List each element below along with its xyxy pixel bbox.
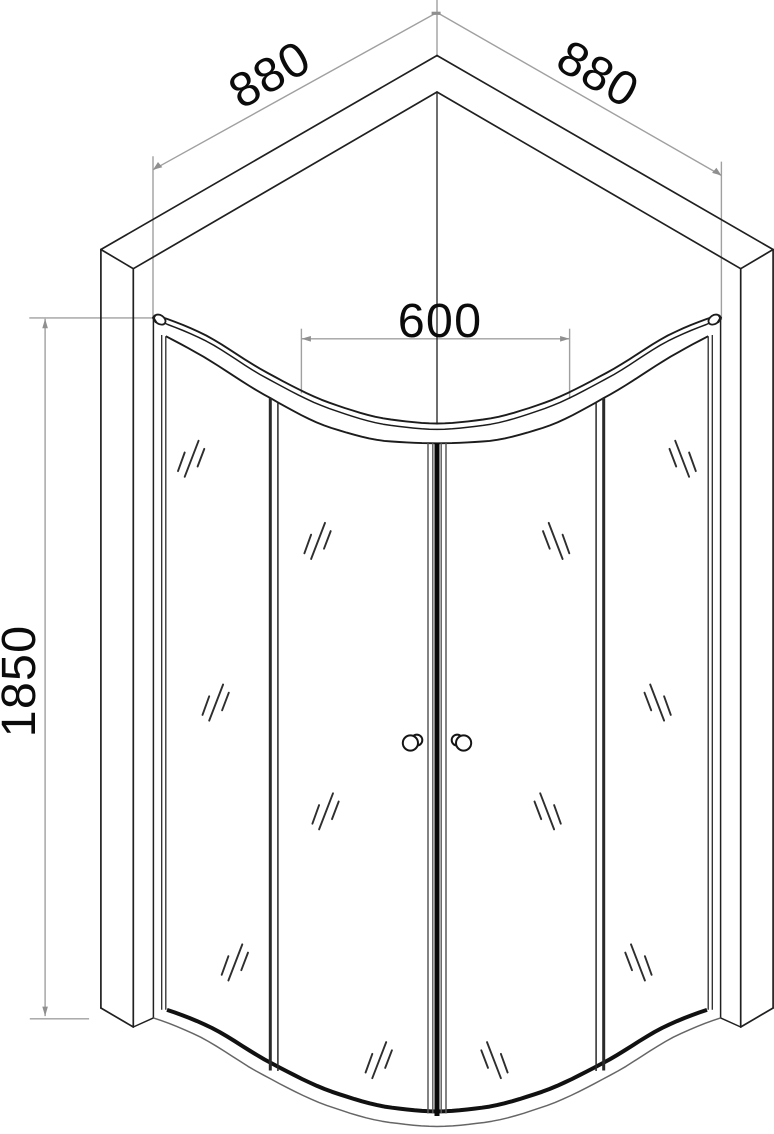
svg-text:1850: 1850 (0, 625, 46, 738)
svg-text:600: 600 (398, 294, 483, 348)
